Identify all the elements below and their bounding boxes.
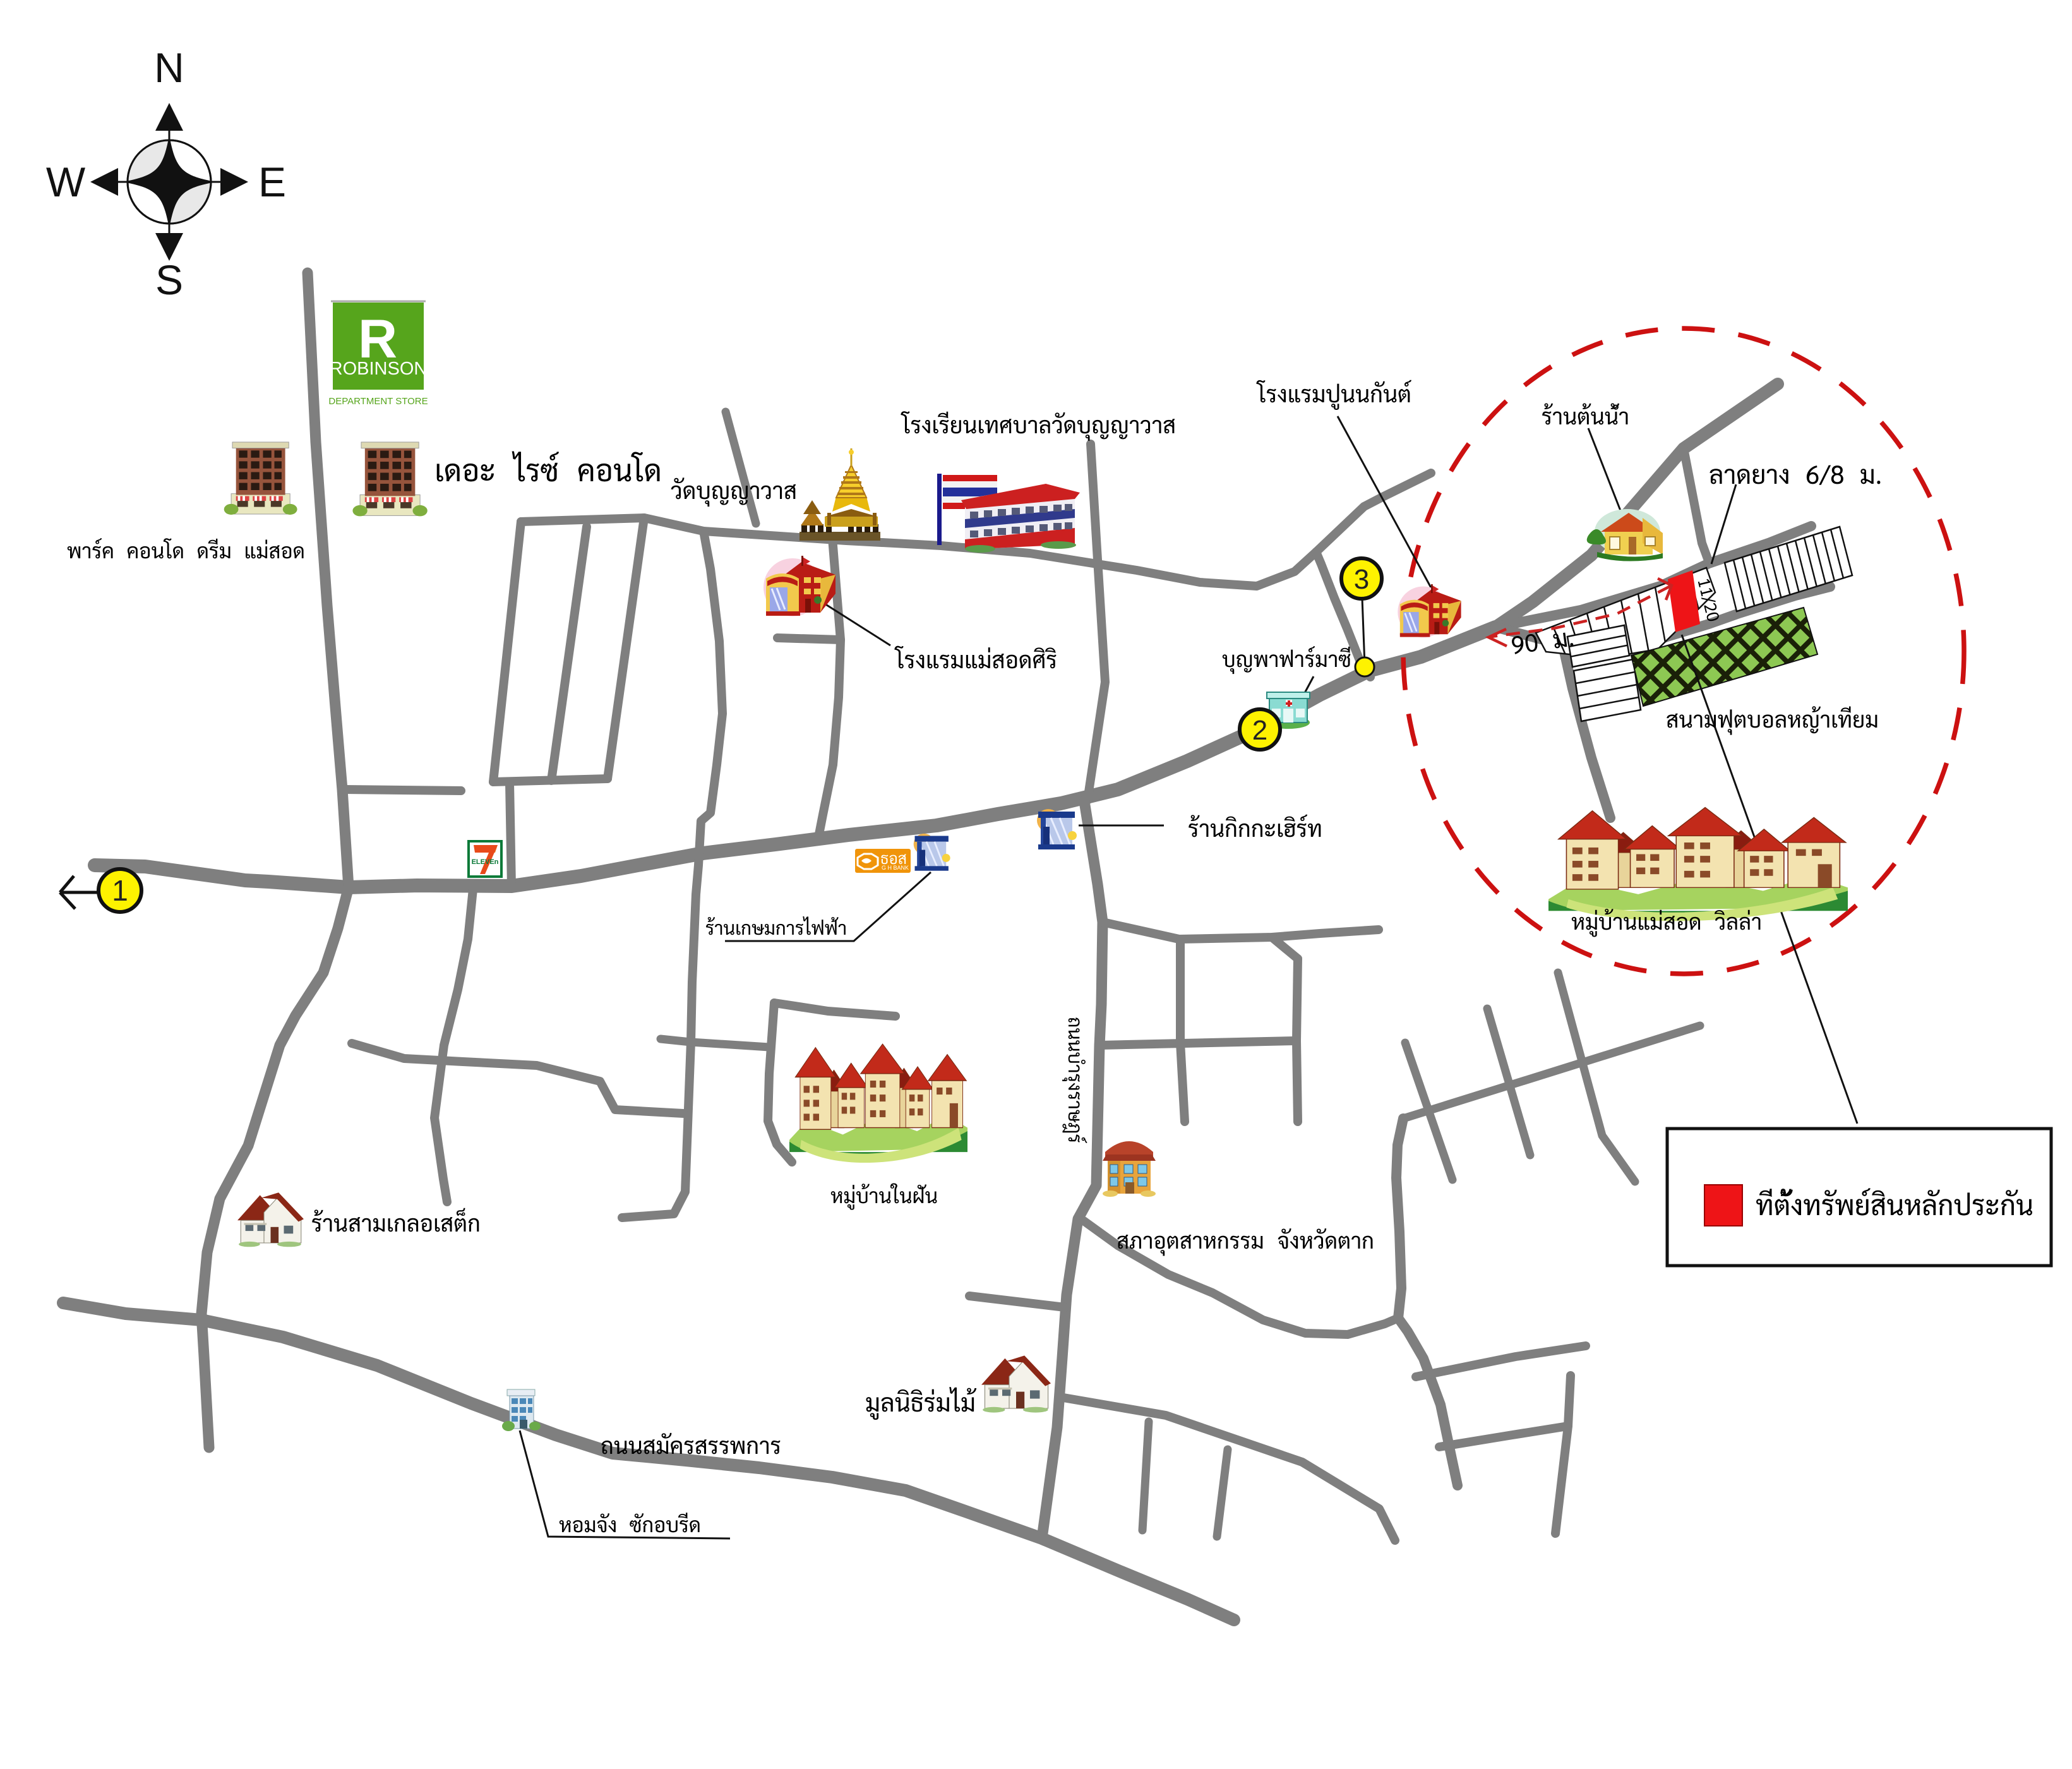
svg-text:1: 1: [112, 874, 128, 907]
svg-text:S: S: [155, 256, 183, 303]
svg-text:R: R: [358, 309, 397, 369]
svg-text:W: W: [46, 159, 86, 205]
svg-text:3: 3: [1354, 564, 1369, 595]
svg-text:2: 2: [1252, 715, 1267, 746]
svg-text:DEPARTMENT STORE: DEPARTMENT STORE: [328, 396, 428, 407]
svg-text:E: E: [258, 159, 286, 205]
svg-text:N: N: [154, 44, 184, 91]
